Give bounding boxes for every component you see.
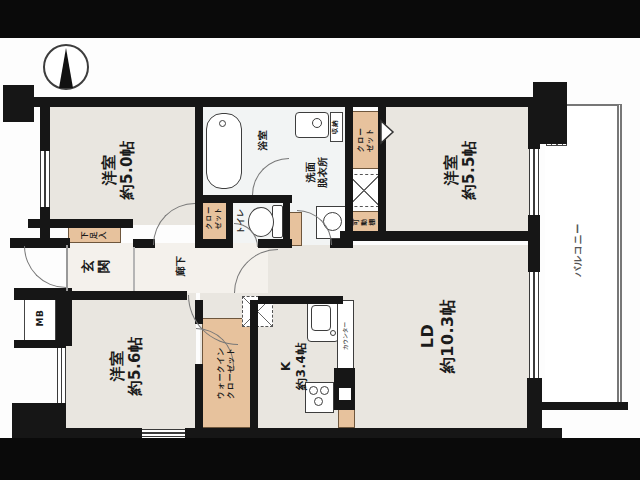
wall xyxy=(28,219,133,228)
kitchen-sink-basin-icon xyxy=(311,305,331,331)
corridor-step-line xyxy=(133,247,135,291)
label-kitchen: K 約3.4帖 xyxy=(279,342,308,390)
wall xyxy=(528,215,540,272)
bathtub-faucet-icon xyxy=(219,120,226,127)
door-panel-bedroom-ne xyxy=(379,118,395,146)
wall xyxy=(258,239,292,248)
label-corridor: 廊下 xyxy=(175,256,187,277)
label-storage-small: 収納 xyxy=(332,120,340,134)
kitchen-side-storage xyxy=(338,409,355,428)
wall xyxy=(133,239,155,248)
window-living-balcony xyxy=(529,272,539,378)
stove-burner-icon xyxy=(314,397,323,406)
wall xyxy=(345,107,353,248)
pipe-space-ne-icon xyxy=(349,174,379,207)
label-entrance: 玄 関 xyxy=(80,259,112,273)
wall xyxy=(340,231,530,241)
wall xyxy=(40,107,50,151)
label-washroom: 洗面 脱衣所 xyxy=(305,156,329,188)
label-living-dining: LD 約10.3帖 xyxy=(418,299,457,373)
label-bathroom: 浴室 xyxy=(257,130,269,151)
label-closet-nw: クロー ゼット xyxy=(205,207,222,230)
wall xyxy=(250,300,258,428)
wall xyxy=(197,239,233,248)
wall xyxy=(28,97,540,107)
window-bedroom-sw-left xyxy=(57,348,66,403)
wall-balcony-bottom xyxy=(540,402,628,410)
label-toilet: トイレ xyxy=(236,208,246,234)
label-movable-shelf: 可 動 棚 xyxy=(353,219,377,226)
wall xyxy=(195,364,203,428)
stove-burner-icon xyxy=(320,386,329,395)
wall xyxy=(57,428,142,438)
label-balcony: バルコニー xyxy=(572,223,584,276)
stove-burner-icon xyxy=(309,386,318,395)
north-arrow-icon xyxy=(59,48,73,88)
label-bedroom-sw: 洋室 約5.6帖 xyxy=(108,336,145,395)
floorplan-canvas: 洋室 約5.0帖 浴室 洗面 脱衣所 収納 クロー ゼット 洋室 約5.5帖 バ… xyxy=(0,0,640,480)
wall xyxy=(185,428,562,438)
kitchen-faucet-icon xyxy=(330,330,336,336)
window-bedroom-sw-bottom xyxy=(142,429,185,437)
label-bedroom-nw: 洋室 約5.0帖 xyxy=(100,140,137,199)
label-bedroom-ne: 洋室 約5.5帖 xyxy=(442,140,479,199)
washbasin-bowl-icon xyxy=(312,118,322,128)
label-walk-in-closet: ウォークイン クローゼット xyxy=(216,347,236,399)
label-closet-ne: クロー ゼット xyxy=(356,128,374,153)
label-counter: カウンター xyxy=(342,322,349,350)
wall xyxy=(195,195,292,203)
label-shoe-cabinet: 下 足 入 xyxy=(80,231,107,239)
wall-corner-block-nw xyxy=(3,85,34,122)
window-bedroom-nw xyxy=(40,151,50,207)
wall xyxy=(65,291,187,300)
wall xyxy=(258,296,343,304)
kitchen-stub-niche xyxy=(339,388,351,400)
label-meter-box: MB xyxy=(35,310,46,327)
wall xyxy=(195,107,203,248)
entrance-step-line xyxy=(66,245,68,291)
window-bedroom-ne xyxy=(529,149,539,215)
wall xyxy=(528,107,540,149)
wall xyxy=(57,293,66,348)
